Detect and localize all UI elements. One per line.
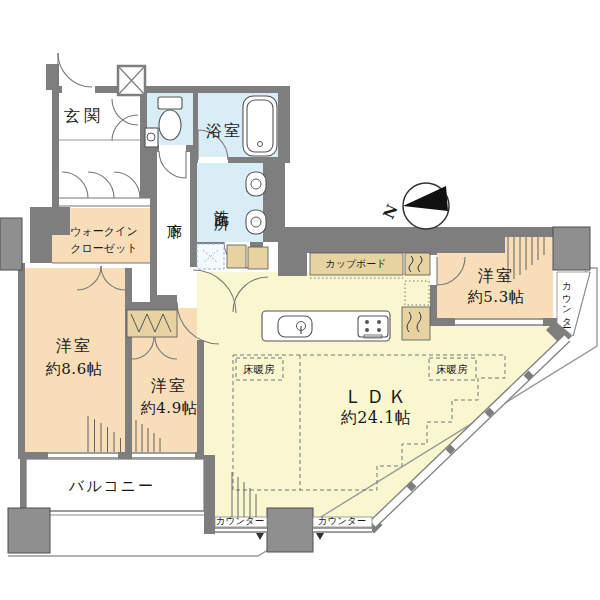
- entrance-closet-door: [114, 172, 140, 198]
- bathtub-fixture: [243, 96, 277, 156]
- shoe-cabinet-door: [112, 115, 138, 141]
- label-bathroom: 浴室: [206, 123, 242, 139]
- shoe-cabinet-door: [112, 99, 138, 125]
- hall-cabinet: [248, 247, 268, 269]
- label-entrance: 玄関: [64, 108, 104, 124]
- entrance-closet-door: [88, 172, 114, 198]
- pillar-bottom-left: [8, 508, 50, 553]
- label-counter-bottom-right: カウンター: [318, 516, 366, 526]
- room-fills: [25, 93, 569, 527]
- label-balcony: バルコニー: [69, 479, 155, 494]
- hall-cabinet: [227, 245, 246, 268]
- label-walk-in-closet-line2: クローゼット: [70, 243, 137, 254]
- meter-box: [405, 253, 430, 275]
- label-floor-heating-right: 床暖房: [436, 364, 468, 375]
- shaft-box: [118, 66, 145, 95]
- label-counter-right: カウンター: [562, 275, 572, 323]
- window-tick-right: [316, 533, 324, 540]
- label-washroom: 洗面所: [214, 198, 229, 207]
- label-counter-bottom-left: カウンター: [216, 516, 264, 526]
- toilet-door: [159, 151, 186, 178]
- label-ldk: ＬＤＫ: [344, 387, 410, 406]
- label-ldk-area: 約24.1帖: [341, 410, 412, 426]
- window-tick-left: [256, 533, 264, 540]
- kitchen-sink: [278, 316, 312, 337]
- kitchen-island: [262, 311, 390, 341]
- closet-4-9: [127, 310, 177, 337]
- label-bedroom-8-6: 洋室: [56, 338, 92, 354]
- label-corridor: 廊下: [167, 211, 182, 217]
- label-bedroom-5-3-area: 約5.3帖: [468, 290, 524, 305]
- pillar-bottom-center: [267, 508, 313, 552]
- label-bedroom-8-6-area: 約8.6帖: [46, 362, 102, 377]
- label-walk-in-closet-line1: ウォークイン: [70, 226, 137, 237]
- label-bedroom-4-9-area: 約4.9帖: [141, 401, 197, 416]
- pillar-left: [0, 218, 22, 270]
- label-floor-heating-left: 床暖房: [243, 364, 275, 375]
- kitchen-stove: [358, 316, 388, 337]
- compass: [403, 183, 449, 229]
- label-bedroom-4-9: 洋室: [151, 378, 187, 394]
- label-bedroom-5-3: 洋室: [478, 268, 514, 284]
- pillar-top-right: [553, 227, 590, 270]
- meter-box: [402, 307, 430, 340]
- washing-machine-space: [197, 244, 224, 269]
- floor-plan: 玄関 浴室 洗面所 廊下 ウォークイン クローゼット 洋室 約8.6帖 洋室 約…: [0, 0, 600, 600]
- entrance-closet-door: [62, 172, 88, 198]
- entry-door: [58, 53, 92, 87]
- label-cupboard: カップボード: [325, 259, 386, 269]
